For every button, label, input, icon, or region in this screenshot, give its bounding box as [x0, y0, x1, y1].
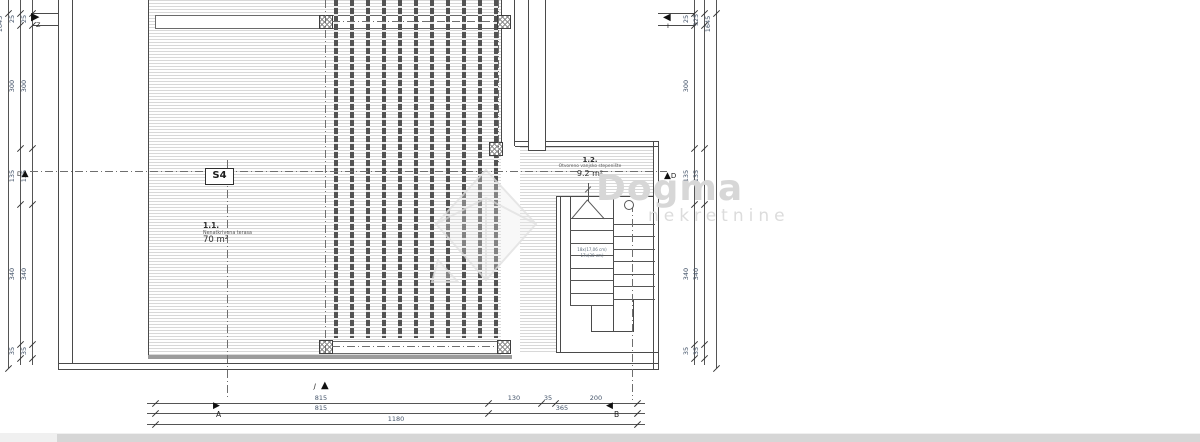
floor-plan-drawing: 2530013534035253001353403516452530013534… [0, 0, 1200, 442]
beam-centre-line [332, 346, 497, 347]
plan-line [591, 331, 634, 332]
plan-line [633, 299, 634, 332]
plan-line [570, 218, 613, 219]
pergola-beam [462, 0, 466, 338]
plan-line [613, 249, 655, 250]
plan-line [570, 305, 613, 306]
plan-line [570, 293, 613, 294]
pergola-beam [398, 0, 402, 338]
dim-label: 815 [306, 395, 336, 403]
plan-line [32, 0, 33, 365]
pergola-beam [430, 0, 434, 338]
view-marker-east: ◀ I [663, 13, 671, 30]
section-label-box: S4 [205, 168, 234, 185]
grid-marker-a: ▶ A [213, 402, 221, 419]
dim-label: 300 [9, 76, 19, 96]
room1-id: 1.1. [203, 222, 283, 231]
east-label: I [667, 23, 671, 30]
plan-line [613, 286, 655, 287]
plan-line [147, 413, 645, 414]
dim-label: 35 [9, 341, 19, 361]
room1-area: 70 m² [203, 236, 283, 246]
horizontal-scrollbar-track[interactable] [0, 433, 1200, 442]
plan-line [613, 261, 655, 262]
plan-line [570, 268, 613, 269]
pergola-beam [382, 0, 386, 338]
plan-line [613, 274, 655, 275]
grid-line-b [632, 204, 633, 400]
pillar [319, 340, 333, 354]
view-marker-west: ▶ Z [31, 11, 40, 29]
floor-plan-viewer: { "labels": { "section_box": "S4", "room… [0, 0, 1200, 442]
plan-line [658, 141, 659, 369]
dim-label: 35 [21, 341, 31, 361]
south-label: J [314, 382, 316, 390]
grid-line-a [227, 160, 228, 400]
plan-line [148, 0, 149, 356]
grid-line-pillar [498, 0, 499, 163]
dim-label: 815 [306, 405, 336, 413]
plan-line [613, 196, 614, 331]
plan-line [58, 369, 659, 370]
west-label: Z [36, 22, 40, 29]
plan-line [556, 352, 659, 353]
south-arrow-icon: ▲ [321, 380, 329, 391]
pillar [319, 15, 333, 29]
horizontal-scrollbar-thumb[interactable] [57, 434, 1200, 442]
plan-line [560, 196, 561, 352]
beam-centre-line [332, 21, 497, 22]
room2-id: 1.2. [530, 156, 650, 164]
pillar [497, 340, 511, 354]
plan-line [704, 0, 705, 365]
plan-line [556, 196, 557, 352]
dim-label: 340 [21, 264, 31, 284]
axis-b-label: B [614, 411, 619, 419]
stair-arrow-v [587, 200, 604, 219]
room-label-terrace: 1.1. Nenatkrivena terasa 70 m² [203, 222, 283, 246]
dim-label: 135 [693, 166, 703, 186]
drain-circle-icon [624, 200, 634, 210]
grid-d-right-label: D [671, 172, 676, 180]
grid-d-right-arrow-icon: ▲ [664, 171, 671, 181]
dim-label: 300 [21, 76, 31, 96]
pergola-bottom-band [331, 341, 499, 354]
dim-label: 340 [693, 264, 703, 284]
dim-label: 1645 [0, 14, 7, 34]
pergola-beam [366, 0, 370, 338]
pergola-beam [334, 0, 338, 338]
plan-line [570, 230, 613, 231]
stair-note: 18x(17,06 cm) 17x(30 cm) [568, 247, 616, 258]
grid-marker-b: ◀ B [606, 402, 619, 419]
plan-line [570, 243, 613, 244]
grid-d-left-arrow-icon: ▲ [22, 169, 29, 179]
plan-line [588, 183, 589, 201]
stair-note-line2: 17x(30 cm) [568, 253, 616, 259]
dim-label: 340 [9, 264, 19, 284]
terrace-edge-band [148, 355, 512, 359]
view-marker-south: J ▲ [314, 373, 329, 392]
pillar [489, 142, 503, 156]
grid-line-j [325, 0, 326, 354]
plan-line [147, 403, 645, 404]
pergola-beam [446, 0, 450, 338]
plan-line [58, 0, 59, 369]
plan-line [613, 299, 655, 300]
plan-line [653, 141, 654, 369]
dim-label: 300 [683, 76, 693, 96]
dim-label: 130 [499, 395, 529, 403]
pergola-beam [414, 0, 418, 338]
plan-line [570, 280, 613, 281]
section-label-text: S4 [212, 170, 226, 181]
plan-line [716, 0, 717, 368]
plan-line [613, 224, 655, 225]
stair-arrow-v [572, 199, 588, 218]
grid-marker-d-right: ▲D [664, 163, 676, 182]
pergola-beam [478, 0, 482, 338]
room2-area: 9.2 m² [530, 169, 650, 178]
room-label-staircase: 1.2. Otvoreno vanjsko stepenište 9.2 m² [530, 156, 650, 178]
plan-line [72, 0, 73, 363]
axis-a-label: A [216, 411, 221, 419]
pergola-beam [350, 0, 354, 338]
grid-marker-d-left: D▲ [17, 161, 29, 180]
plan-line [147, 424, 645, 425]
dim-label: 35 [533, 395, 563, 403]
plan-line [58, 363, 659, 364]
pillar [497, 15, 511, 29]
plan-line [514, 0, 515, 146]
plan-line [613, 236, 655, 237]
wall-stub [528, 0, 546, 151]
dim-label: 1180 [381, 416, 411, 424]
plan-line [591, 305, 592, 332]
